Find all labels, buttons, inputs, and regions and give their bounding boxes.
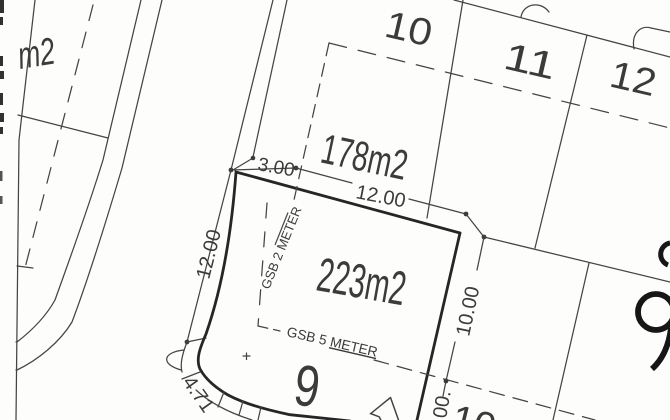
svg-text:11: 11 — [500, 36, 560, 89]
svg-text:4.71: 4.71 — [178, 372, 218, 417]
svg-text:12.00: 12.00 — [193, 227, 226, 281]
svg-text:m2: m2 — [15, 31, 58, 78]
svg-text:10: 10 — [447, 397, 500, 420]
svg-text:10: 10 — [381, 4, 436, 55]
svg-text:10.00: 10.00 — [452, 284, 484, 338]
svg-text:178m2: 178m2 — [317, 125, 412, 189]
svg-text:GSB 2 METER: GSB 2 METER — [258, 204, 305, 291]
svg-text:223m2: 223m2 — [313, 249, 410, 317]
svg-text:9: 9 — [290, 353, 324, 420]
svg-text:00.: 00. — [429, 389, 455, 420]
svg-text:3.00: 3.00 — [256, 154, 296, 181]
svg-text:12: 12 — [606, 54, 660, 105]
